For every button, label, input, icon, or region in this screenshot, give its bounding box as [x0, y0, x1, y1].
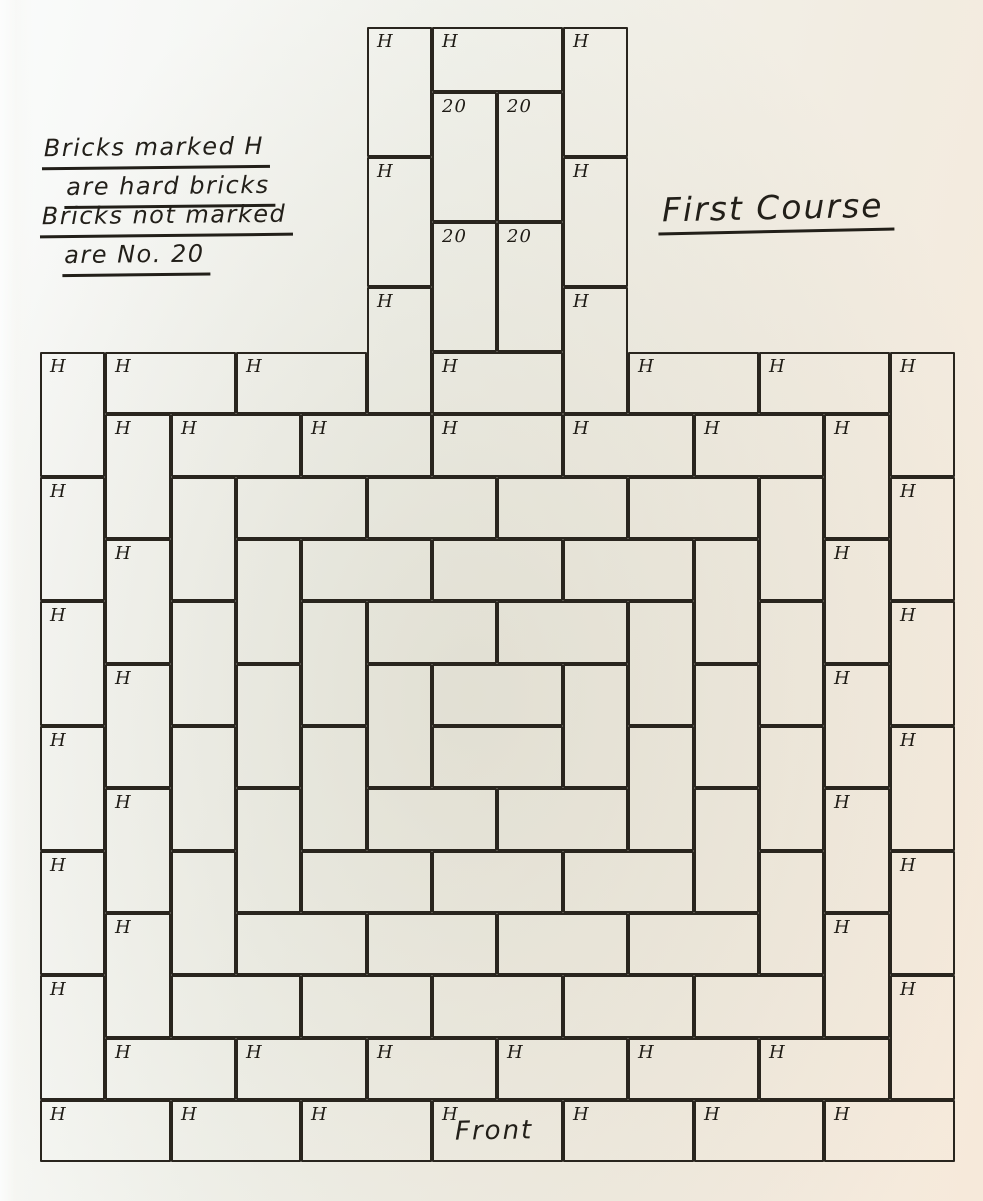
brick-hard: H [563, 1100, 694, 1162]
brick-hard: H [694, 414, 824, 477]
brick-mark: 20 [507, 96, 532, 117]
brick-mark: H [769, 356, 786, 377]
brick-hard: H [694, 1100, 824, 1162]
brick-no20: 20 [432, 222, 497, 352]
brick-hard: H [367, 157, 432, 287]
brick-mark: H [834, 792, 851, 813]
brick-no20 [432, 851, 563, 913]
brick-mark: H [50, 481, 67, 502]
brick-hard: H [105, 352, 236, 414]
brick-hard: H [563, 157, 628, 287]
brick-mark: H [377, 1042, 394, 1063]
brick-mark: 20 [507, 226, 532, 247]
brick-hard: H [890, 726, 955, 851]
brick-mark: H [900, 855, 917, 876]
brick-mark: H [507, 1042, 524, 1063]
brick-hard: H [105, 664, 171, 788]
brick-mark: H [834, 917, 851, 938]
brick-mark: H [638, 1042, 655, 1063]
brick-hard: H [824, 1100, 955, 1162]
brick-hard: H [40, 477, 105, 601]
brick-mark: H [311, 418, 328, 439]
brick-hard: H [367, 287, 432, 414]
brick-mark: H [246, 1042, 263, 1063]
brick-hard: H [890, 851, 955, 975]
brick-hard: H [105, 788, 171, 913]
brick-hard: H [890, 477, 955, 601]
brick-no20 [432, 539, 563, 601]
brick-no20 [367, 601, 497, 664]
brick-no20 [628, 913, 759, 975]
brick-hard: H [824, 539, 890, 664]
brick-hard: H [236, 1038, 367, 1100]
brick-mark: H [442, 356, 459, 377]
brick-no20 [171, 975, 301, 1038]
brick-hard: H [105, 1038, 236, 1100]
brick-mark: 20 [442, 96, 467, 117]
brick-no20 [236, 664, 301, 788]
brick-no20 [759, 726, 824, 851]
brick-mark: H [50, 855, 67, 876]
brick-hard: H [40, 851, 105, 975]
brick-mark: H [442, 31, 459, 52]
brick-mark: H [377, 161, 394, 182]
brick-mark: H [638, 356, 655, 377]
brick-mark: H [246, 356, 263, 377]
brick-mark: 20 [442, 226, 467, 247]
brick-hard: H [171, 1100, 301, 1162]
brick-hard: H [367, 27, 432, 157]
brick-hard: H [563, 287, 628, 414]
brick-no20 [694, 664, 759, 788]
legend-note-no20-bricks: Bricks not marked are No. 20 [40, 197, 293, 277]
brick-no20 [432, 664, 563, 726]
brick-no20 [563, 851, 694, 913]
brick-no20 [171, 477, 236, 601]
brick-hard: H [497, 1038, 628, 1100]
brick-no20 [301, 851, 432, 913]
brick-hard: H [40, 1100, 171, 1162]
brick-no20 [236, 477, 367, 539]
brick-no20 [694, 539, 759, 664]
brick-no20 [497, 788, 628, 851]
brick-hard: H [432, 27, 563, 92]
brick-hard: H [563, 414, 694, 477]
brick-hard: H [40, 352, 105, 477]
brick-hard: H [890, 601, 955, 726]
brick-no20 [563, 975, 694, 1038]
brick-mark: H [900, 979, 917, 1000]
brick-mark: H [573, 291, 590, 312]
brick-hard: H [759, 352, 890, 414]
brick-no20 [367, 788, 497, 851]
brick-hard: H [628, 352, 759, 414]
brick-hard: H [824, 913, 890, 1038]
brick-hard: H [236, 352, 367, 414]
brick-mark: H [834, 543, 851, 564]
brick-mark: H [115, 1042, 132, 1063]
brick-no20 [628, 601, 694, 726]
brick-mark: H [573, 1104, 590, 1125]
brick-no20 [694, 975, 824, 1038]
brick-mark: H [900, 356, 917, 377]
brick-hard: H [367, 1038, 497, 1100]
brick-no20 [301, 539, 432, 601]
brick-no20: 20 [497, 222, 563, 352]
brick-hard: H [824, 788, 890, 913]
brick-mark: H [50, 605, 67, 626]
brick-mark: H [311, 1104, 328, 1125]
brick-no20 [497, 601, 628, 664]
brick-mark: H [377, 291, 394, 312]
brick-no20 [236, 913, 367, 975]
legend-note-line: Bricks not marked [40, 197, 293, 238]
brick-no20 [236, 539, 301, 664]
brick-hard: H [105, 414, 171, 539]
brick-hard: H [301, 1100, 432, 1162]
brick-no20 [432, 726, 563, 788]
brick-mark: H [50, 356, 67, 377]
brick-hard: H [40, 726, 105, 851]
brick-mark: H [181, 418, 198, 439]
brick-no20: 20 [432, 92, 497, 222]
brick-mark: H [834, 418, 851, 439]
brick-no20 [367, 913, 497, 975]
brick-mark: H [834, 1104, 851, 1125]
brick-mark: H [900, 605, 917, 626]
brick-mark: H [50, 730, 67, 751]
brick-hard: H [40, 975, 105, 1100]
brick-mark: H [573, 161, 590, 182]
brick-hard: H [432, 414, 563, 477]
brick-hard: H [40, 601, 105, 726]
brick-no20 [367, 477, 497, 539]
brick-hard: H [824, 664, 890, 788]
brick-no20 [171, 601, 236, 726]
brick-no20 [563, 539, 694, 601]
brick-mark: H [573, 418, 590, 439]
brick-hard: H [824, 414, 890, 539]
brick-hard: H [105, 539, 171, 664]
brick-mark: H [704, 418, 721, 439]
brick-no20 [301, 975, 432, 1038]
brick-no20 [367, 664, 432, 788]
brick-no20 [759, 851, 824, 975]
brick-hard: H [890, 975, 955, 1100]
brick-mark: H [115, 543, 132, 564]
brick-mark: H [769, 1042, 786, 1063]
brick-mark: H [181, 1104, 198, 1125]
brick-mark: H [115, 917, 132, 938]
front-label: Front [455, 1115, 534, 1146]
brick-no20: 20 [497, 92, 563, 222]
brick-no20 [759, 477, 824, 601]
brick-mark: H [900, 730, 917, 751]
brick-mark: H [50, 979, 67, 1000]
brick-no20 [171, 851, 236, 975]
brick-hard: H [890, 352, 955, 477]
brick-no20 [497, 477, 628, 539]
brick-no20 [171, 726, 236, 851]
brick-no20 [301, 726, 367, 851]
brick-mark: H [704, 1104, 721, 1125]
brick-hard: H [171, 414, 301, 477]
brick-mark: H [115, 792, 132, 813]
brick-mark: H [834, 668, 851, 689]
legend-note-line: are No. 20 [62, 236, 211, 276]
brick-mark: H [900, 481, 917, 502]
brick-mark: H [377, 31, 394, 52]
brick-no20 [432, 975, 563, 1038]
brick-mark: H [442, 418, 459, 439]
brick-no20 [236, 788, 301, 913]
brick-no20 [563, 664, 628, 788]
brick-hard: H [105, 913, 171, 1038]
brick-no20 [759, 601, 824, 726]
brick-hard: H [628, 1038, 759, 1100]
brick-no20 [694, 788, 759, 913]
brick-hard: H [301, 414, 432, 477]
brick-mark: H [50, 1104, 67, 1125]
brick-mark: H [115, 356, 132, 377]
brick-no20 [497, 913, 628, 975]
brick-hard: H [563, 27, 628, 157]
brick-mark: H [115, 668, 132, 689]
brick-hard: H [759, 1038, 890, 1100]
legend-note-line: Bricks marked H [42, 129, 271, 170]
brick-mark: H [573, 31, 590, 52]
brick-hard: H [432, 352, 563, 414]
brick-mark: H [115, 418, 132, 439]
brick-no20 [628, 726, 694, 851]
brick-no20 [301, 601, 367, 726]
course-title: First Course [658, 186, 894, 236]
brick-no20 [628, 477, 759, 539]
drawing-sheet: Bricks marked H are hard bricks Bricks n… [0, 0, 983, 1201]
